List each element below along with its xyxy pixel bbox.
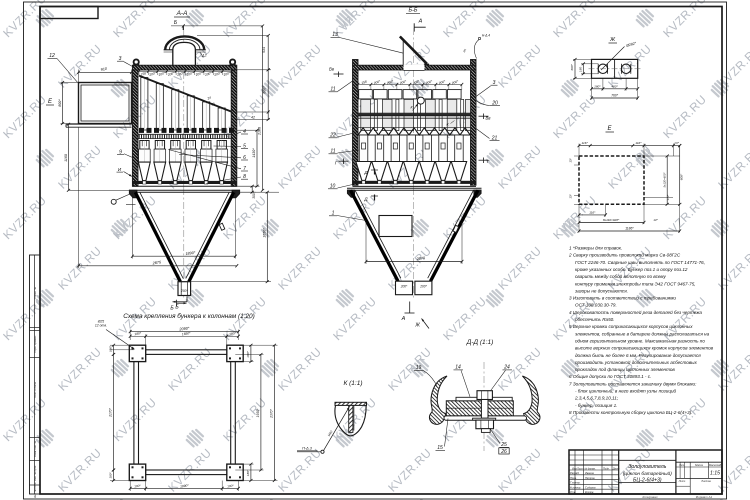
- svg-text:Инв. № дубл.: Инв. № дубл.: [33, 465, 37, 481]
- svg-text:Масса: Масса: [695, 463, 703, 467]
- svg-text:6 Общие допуски по ГОСТ 30893.: 6 Общие допуски по ГОСТ 30893.1 - с.: [569, 374, 651, 379]
- svg-text:Подп.: Подп.: [603, 467, 610, 470]
- svg-text:Взам. инв. №: Взам. инв. №: [33, 441, 37, 457]
- svg-text:ОСТ 108.030.30-79.: ОСТ 108.030.30-79.: [575, 303, 617, 308]
- svg-text:2,3,4,5,6,7,8,9,10,11;: 2,3,4,5,6,7,8,9,10,11;: [574, 396, 619, 401]
- svg-text:1160: 1160: [64, 154, 68, 162]
- svg-text:42: 42: [251, 115, 255, 119]
- svg-text:Б-Б: Б-Б: [409, 8, 418, 14]
- svg-text:Разраб.: Разраб.: [570, 471, 580, 475]
- svg-text:- блок циклонный, в него входя: - блок циклонный, в него входят узлы поз…: [575, 388, 676, 394]
- svg-text:БЦ-2-6(4+3): БЦ-2-6(4+3): [633, 478, 662, 484]
- svg-text:Петров: Петров: [585, 476, 595, 480]
- svg-text:Ж: Ж: [609, 37, 616, 43]
- svg-text:1 *Размеры для справок.: 1 *Размеры для справок.: [569, 246, 622, 251]
- svg-text:№ докум.: № докум.: [585, 467, 596, 470]
- svg-text:180*: 180*: [246, 469, 250, 476]
- svg-text:2 Сварку производить проволоко: 2 Сварку производить проволокой марки Св…: [568, 252, 681, 258]
- svg-text:8х116=928*: 8х116=928*: [603, 218, 620, 222]
- svg-text:Копировал: Копировал: [643, 495, 658, 499]
- svg-text:1430*: 1430*: [252, 148, 256, 158]
- svg-text:Иванов: Иванов: [585, 471, 594, 475]
- svg-text:Формат А1: Формат А1: [696, 495, 713, 499]
- svg-text:контуру применяя электроды тип: контуру применяя электроды типа Э42 ГОСТ…: [575, 281, 696, 286]
- svg-text:производить установкой дополни: производить установкой дополнительных ас…: [575, 359, 698, 365]
- svg-text:100*: 100*: [109, 345, 113, 352]
- svg-text:Инв. № подл.: Инв. № подл.: [33, 482, 37, 498]
- svg-text:200*: 200*: [180, 289, 189, 293]
- svg-text:прокладок под фланцы циклонных: прокладок под фланцы циклонных элементов: [575, 367, 675, 372]
- svg-text:800*: 800*: [58, 99, 62, 107]
- svg-text:12: 12: [49, 53, 55, 59]
- svg-text:8 Произвести контрольную сборк: 8 Произвести контрольную сборку циклона …: [569, 410, 693, 415]
- svg-text:180*: 180*: [246, 351, 250, 358]
- svg-text:12 отв.: 12 отв.: [95, 324, 107, 328]
- svg-text:П-Δ.3: П-Δ.3: [302, 447, 313, 451]
- svg-text:1650*: 1650*: [262, 228, 266, 238]
- svg-text:1186*: 1186*: [625, 226, 634, 230]
- svg-text:Масштаб: Масштаб: [709, 463, 722, 467]
- svg-text:зазоры не допускаются.: зазоры не допускаются.: [574, 288, 628, 293]
- svg-text:Пров.: Пров.: [570, 476, 577, 480]
- svg-text:3 Изготовить в соответствии с: 3 Изготовить в соответствии с требования…: [569, 296, 676, 301]
- svg-text:116*: 116*: [582, 141, 589, 145]
- svg-text:200*: 200*: [419, 285, 427, 289]
- svg-text:180: 180: [579, 67, 583, 72]
- svg-text:ГОСТ 2246-70. Сварные швы выпо: ГОСТ 2246-70. Сварные швы выполнять по Г…: [575, 260, 705, 265]
- svg-text:сварить между собой вплотную п: сварить между собой вплотную по всему: [575, 273, 666, 279]
- svg-text:(циклон батарейный): (циклон батарейный): [623, 470, 672, 477]
- svg-text:170*: 170*: [666, 194, 670, 201]
- svg-text:400*: 400*: [611, 84, 618, 88]
- svg-text:100*: 100*: [109, 472, 113, 479]
- svg-text:должна быть не более 6 мм. Рег: должна быть не более 6 мм. Регулирование…: [575, 353, 701, 358]
- svg-text:Перв. примен.: Перв. примен.: [33, 335, 37, 353]
- svg-text:Н.контр.: Н.контр.: [570, 486, 581, 490]
- svg-text:Козлов: Козлов: [585, 490, 594, 494]
- svg-text:К (1:1): К (1:1): [343, 380, 362, 387]
- svg-text:кроме указанных особо. Бункер: кроме указанных особо. Бункер поз.1 и оп…: [575, 267, 688, 272]
- svg-text:Н-Δ.4: Н-Δ.4: [482, 34, 490, 38]
- svg-text:Лист: Лист: [678, 479, 687, 483]
- svg-text:одном горизонтальном уровне. М: одном горизонтальном уровне. Максимальна…: [575, 338, 705, 343]
- svg-text:Т.контр.: Т.контр.: [570, 481, 581, 485]
- svg-text:13: 13: [332, 32, 338, 38]
- svg-text:5 Верхние кромки соприкасающих: 5 Верхние кромки соприкасающихся корпусо…: [569, 324, 693, 329]
- svg-text:Справ. №: Справ. №: [33, 287, 37, 299]
- svg-text:13*: 13*: [674, 141, 679, 145]
- svg-text:А-А: А-А: [176, 10, 188, 17]
- svg-text:600*: 600*: [679, 173, 683, 180]
- svg-text:116*: 116*: [589, 210, 596, 214]
- svg-text:5х120=600*: 5х120=600*: [662, 172, 666, 188]
- svg-text:2160: 2160: [257, 127, 261, 136]
- svg-text:Дата: Дата: [612, 467, 620, 470]
- svg-text:элементов, собранные в батарею: элементов, собранные в батарею должны ра…: [575, 331, 710, 336]
- svg-text:7 Золоуловитель поставляется з: 7 Золоуловитель поставляется заказчику д…: [569, 381, 697, 386]
- svg-text:высоте верхних соприкасающихся: высоте верхних соприкасающихся кромок ко…: [575, 346, 714, 351]
- svg-text:600*: 600*: [262, 86, 266, 94]
- svg-text:200*: 200*: [400, 285, 408, 289]
- svg-text:Д-Д (1:1): Д-Д (1:1): [466, 339, 494, 346]
- svg-text:1930*: 1930*: [256, 408, 260, 417]
- svg-text:Лит.: Лит.: [678, 463, 685, 467]
- svg-text:300*: 300*: [570, 64, 574, 71]
- svg-text:1:15: 1:15: [710, 471, 720, 477]
- svg-text:760*: 760*: [611, 94, 619, 98]
- svg-text:Лист: Лист: [576, 467, 583, 470]
- svg-text:Вв: Вв: [329, 67, 335, 72]
- svg-text:Листов: Листов: [700, 479, 711, 483]
- svg-text:Сидоров: Сидоров: [585, 486, 596, 490]
- svg-text:2370*: 2370*: [270, 408, 274, 418]
- svg-text:- бункер, позиция 1.: - бункер, позиция 1.: [575, 403, 617, 408]
- svg-text:А: А: [418, 19, 423, 25]
- svg-text:Утв.: Утв.: [570, 490, 576, 494]
- svg-text:Схема крепления бункера к коло: Схема крепления бункера к колоннам (1:20…: [123, 312, 254, 320]
- svg-text:Подп. и дата: Подп. и дата: [33, 381, 37, 398]
- svg-text:180*: 180*: [594, 84, 601, 88]
- svg-text:4 Шероховатость поверхностей р: 4 Шероховатость поверхностей реза детале…: [569, 309, 702, 315]
- svg-text:Золоуловитель: Золоуловитель: [628, 464, 666, 470]
- svg-text:обеспечить Ra50.: обеспечить Ra50.: [575, 317, 614, 322]
- svg-text:2170*: 2170*: [109, 407, 113, 417]
- svg-text:116*: 116*: [635, 141, 642, 145]
- svg-text:Ж: Ж: [414, 323, 420, 329]
- svg-text:А: А: [401, 316, 406, 322]
